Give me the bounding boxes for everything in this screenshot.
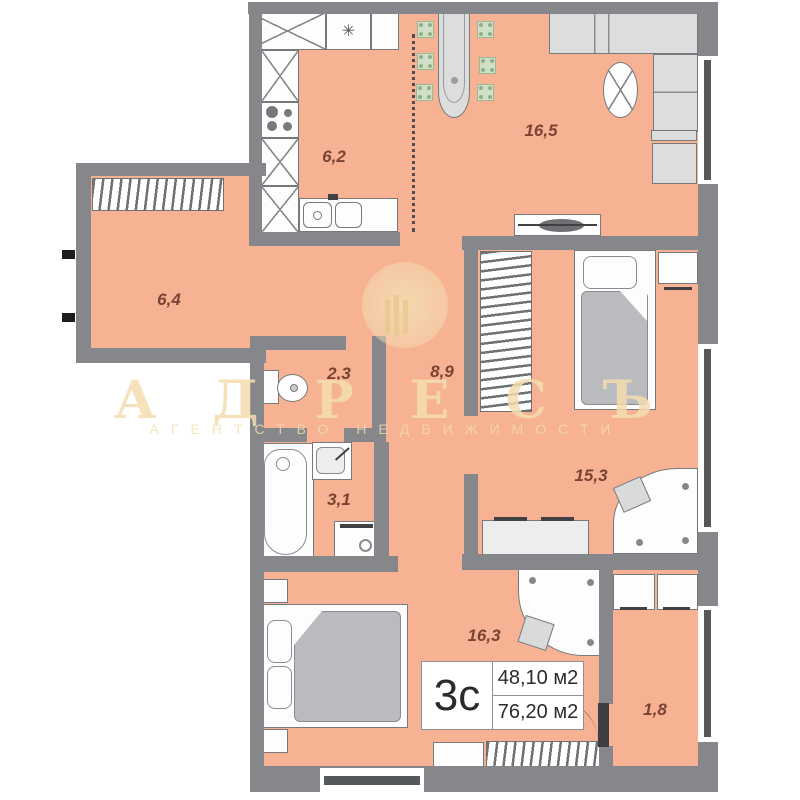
stove-burner (267, 121, 277, 131)
window-bedroom2-glass (324, 776, 420, 785)
window-bedroom1-glass (704, 349, 711, 527)
washing-machine-door (359, 539, 372, 552)
toilet-drain (290, 384, 298, 392)
chair (417, 53, 434, 70)
coffee-table (603, 62, 638, 118)
chair (416, 84, 433, 101)
window-balcony-glass (704, 610, 711, 737)
room-label-living: 16,5 (524, 121, 557, 141)
wall-bedroom2-top (250, 556, 398, 572)
apartment-area-total: 76,20 м2 (493, 696, 583, 729)
dining-table (438, 10, 470, 118)
sofa-seat-mark (541, 517, 574, 521)
balcony-cabinet (613, 574, 655, 610)
apartment-info-box: 3с 48,10 м2 76,20 м2 (421, 661, 584, 730)
nightstand (262, 579, 288, 603)
bathtub-drain (276, 457, 290, 471)
balcony-cabinet-handle (663, 607, 690, 610)
blanket-fold (294, 611, 322, 645)
desk-leg-dot (587, 579, 594, 586)
nightstand-handle (664, 287, 692, 290)
wall-bedroom1-bottom (462, 554, 718, 570)
coat-rack (92, 178, 224, 211)
chair (477, 21, 494, 38)
balcony-cabinet-handle (620, 607, 647, 610)
sink-bowl (303, 202, 332, 228)
dining-table-inner (443, 13, 465, 103)
room-label-bedroom1: 15,3 (574, 466, 607, 486)
wall-wing-left (76, 163, 91, 363)
kitchen-cabinet (261, 138, 299, 186)
sink-drain (313, 211, 322, 220)
stove-burner (266, 106, 278, 118)
desk-leg-dot (636, 539, 643, 546)
wall-toilet-top (250, 336, 346, 350)
sofa-armrest (651, 130, 697, 141)
wall-kitchen-bottom (249, 232, 400, 246)
nightstand (658, 252, 698, 284)
desk-leg-dot (682, 483, 689, 490)
chair (479, 57, 496, 74)
wall-outer-top (248, 2, 718, 14)
wall-outer-left (250, 336, 264, 770)
apartment-area-living: 48,10 м2 (493, 662, 583, 696)
entrance-door-mark (62, 250, 75, 259)
tv-stand-line (518, 224, 597, 226)
stove-burner (284, 109, 292, 117)
room-label-toilet: 2,3 (327, 364, 351, 384)
bathtub (258, 443, 314, 562)
sofa-corner-top (549, 12, 698, 54)
floor-plan: ✳ (0, 0, 800, 800)
toilet-bowl (277, 374, 308, 402)
wall-bedroom2-right-lower (599, 746, 613, 770)
sofa-corner-side (653, 54, 698, 132)
wall-corridor-right-lower (464, 474, 478, 560)
armchair (652, 143, 697, 184)
wall-bedroom2-right-upper (599, 570, 613, 704)
wardrobe (480, 251, 532, 412)
stove-burner (283, 122, 292, 131)
fridge-snowflake-icon: ✳ (342, 21, 355, 41)
stove (261, 102, 299, 138)
room-label-kitchen: 6,2 (322, 147, 346, 167)
wall-wing-top (76, 163, 266, 176)
wall-toilet-right (372, 336, 386, 442)
kitchen-cabinet (261, 186, 299, 233)
room-label-hallway: 6,4 (157, 290, 181, 310)
room-label-balcony: 1,8 (643, 700, 667, 720)
balcony-cabinet (657, 574, 698, 610)
wall-bathroom-top-left (250, 428, 307, 442)
bed-pillow (583, 256, 637, 289)
wall-corridor-right-upper (464, 250, 478, 416)
washbasin (312, 442, 352, 480)
window-living-glass (704, 60, 711, 180)
room-label-bedroom2: 16,3 (467, 626, 500, 646)
kitchen-zone-divider (412, 34, 415, 232)
room-label-bathroom: 3,1 (327, 490, 351, 510)
wall-bathroom-right (374, 442, 389, 556)
blanket-fold (620, 291, 647, 321)
wall-kitchen-left (249, 2, 262, 246)
wall-living-bottom (462, 236, 718, 250)
fridge: ✳ (326, 12, 371, 50)
chair (417, 21, 434, 38)
dining-table-dot (451, 77, 458, 84)
bed-pillow (267, 620, 292, 663)
nightstand (262, 729, 288, 753)
desk-leg-dot (682, 537, 689, 544)
wall-wing-bottom (76, 348, 266, 363)
washing-machine-panel (340, 524, 373, 528)
balcony-door-leaf (598, 703, 609, 747)
desk-leg-dot (529, 577, 536, 584)
kitchen-cabinet (261, 50, 299, 102)
desk-leg-dot (587, 639, 594, 646)
chair (477, 84, 494, 101)
apartment-type-label: 3с (422, 662, 493, 729)
washbasin-inner (316, 447, 345, 474)
sink-faucet (328, 194, 338, 200)
entrance-door-mark (62, 313, 75, 322)
room-label-corridor: 8,9 (430, 362, 454, 382)
sink-bowl (335, 202, 362, 228)
sofa-seat-mark (494, 517, 527, 521)
bed-pillow (267, 666, 292, 709)
wall-bathroom-top-right (344, 428, 386, 442)
kitchen-counter (371, 12, 399, 50)
